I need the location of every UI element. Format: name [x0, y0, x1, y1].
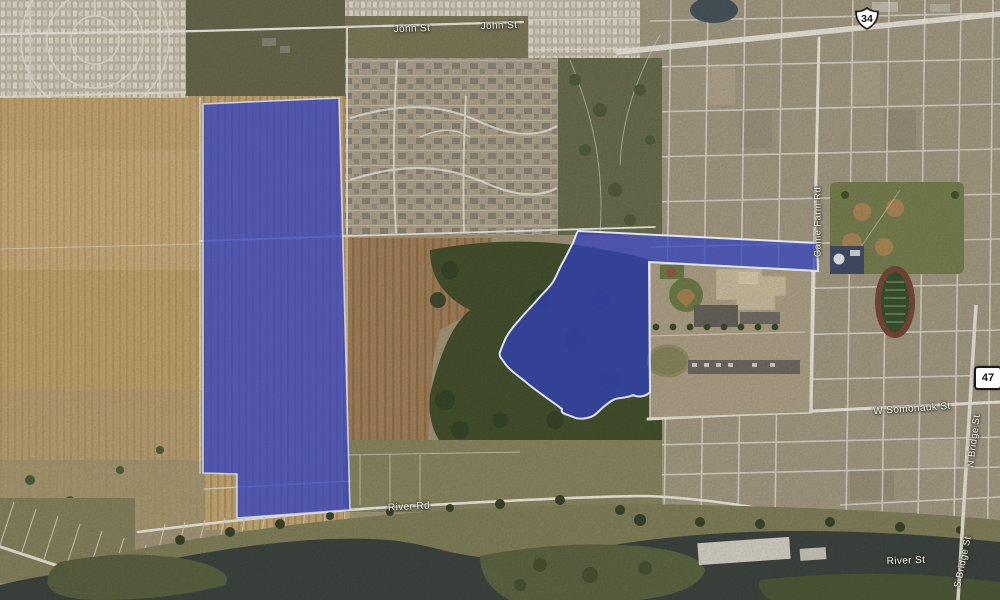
us-34-route-shield-icon: 34 [854, 7, 880, 30]
map-canvas[interactable] [0, 0, 1000, 600]
street-label-john-st-e: John St [480, 20, 517, 32]
imagery-texture [0, 0, 1000, 600]
satellite-map[interactable]: John St John St Game Farm Rd W Somonauk … [0, 0, 1000, 600]
street-label-river-rd: River Rd [388, 500, 431, 513]
west-parcel[interactable] [203, 98, 350, 518]
street-label-river-st: River St [886, 555, 925, 567]
svg-text:34: 34 [861, 14, 873, 25]
street-label-game-farm-rd: Game Farm Rd [813, 187, 824, 257]
il-47-route-shield-icon: 47 [974, 366, 1000, 390]
street-label-john-st-w: John St [393, 23, 430, 35]
